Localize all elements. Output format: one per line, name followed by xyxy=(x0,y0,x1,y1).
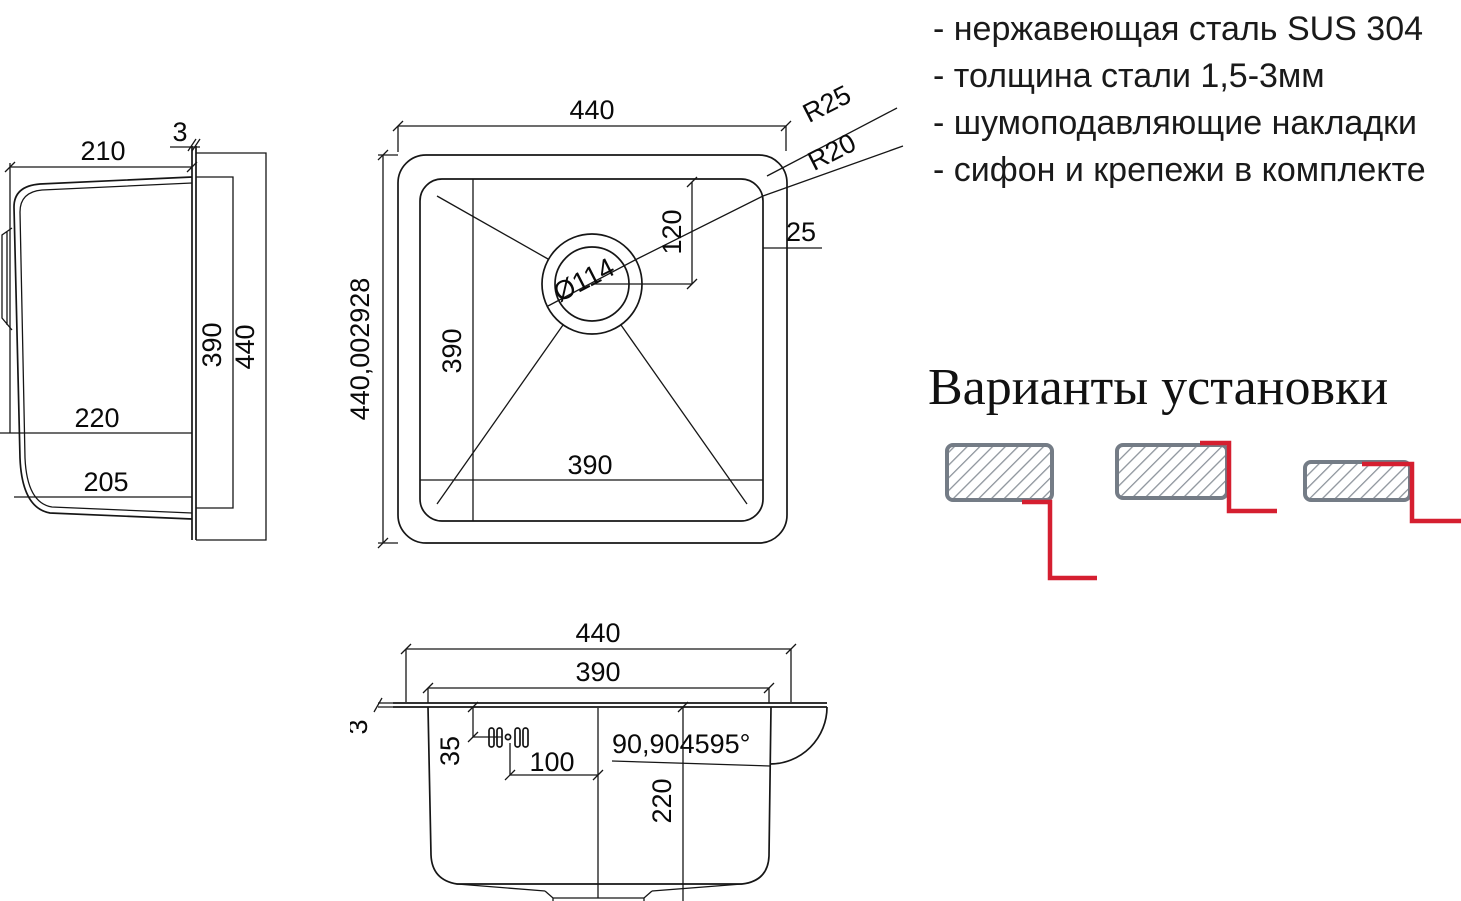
top-dim-r25-label: R25 xyxy=(798,85,856,129)
installation-diagrams xyxy=(920,430,1461,600)
front-dim-3-label: 3 xyxy=(350,719,373,734)
top-view: 440 440,002928 390 390 Ø114 R25 R20 120 … xyxy=(350,85,915,575)
top-dim-25-label: 25 xyxy=(786,217,816,247)
top-dim-440002928-label: 440,002928 xyxy=(350,278,375,421)
countertop-section-1 xyxy=(947,445,1052,500)
installation-diagram-overmount xyxy=(1305,462,1461,521)
front-dim-angle-label: 90,904595° xyxy=(612,729,750,759)
technical-drawing-page: { "features": { "items": [ "- нержавеюща… xyxy=(0,0,1461,901)
top-dim-drain-label: Ø114 xyxy=(549,252,620,308)
side-dim-220-label: 220 xyxy=(74,403,119,433)
side-view: 210 3 390 440 220 205 xyxy=(0,95,300,560)
installation-diagram-flush xyxy=(1117,443,1277,511)
side-dim-3-label: 3 xyxy=(172,117,187,147)
front-corner-arc xyxy=(770,707,827,764)
feature-item: - толщина стали 1,5-3мм xyxy=(933,53,1461,100)
side-bowl-inner-line xyxy=(20,183,192,513)
front-dim-35-label: 35 xyxy=(435,736,465,766)
front-dim-100-label: 100 xyxy=(529,747,574,777)
top-dim-r20-label: R20 xyxy=(803,127,861,176)
overflow-holes xyxy=(489,728,528,747)
installation-diagram-undermount xyxy=(947,445,1097,578)
feature-item: - сифон и крепежи в комплекте xyxy=(933,147,1461,194)
side-dim-440-label: 440 xyxy=(230,324,260,369)
front-view: 440 390 3 35 100 90,904595° 220 xyxy=(350,600,860,901)
sink-rim-profile-1 xyxy=(1022,502,1097,578)
side-dim-390-label: 390 xyxy=(197,322,227,367)
front-dim-390-label: 390 xyxy=(575,657,620,687)
top-dim-390h-label: 390 xyxy=(567,450,612,480)
side-dim-205-label: 205 xyxy=(83,467,128,497)
feature-item: - нержавеющая сталь SUS 304 xyxy=(933,6,1461,53)
installation-title: Варианты установки xyxy=(928,358,1461,417)
countertop-section-2 xyxy=(1117,445,1227,498)
front-dim-440-label: 440 xyxy=(575,618,620,648)
feature-item: - шумоподавляющие накладки xyxy=(933,100,1461,147)
top-dim-120-label: 120 xyxy=(657,209,687,254)
front-dim-220-label: 220 xyxy=(647,778,677,823)
countertop-section-3 xyxy=(1305,462,1410,500)
side-dim-210-label: 210 xyxy=(80,136,125,166)
top-dim-390v-label: 390 xyxy=(437,328,467,373)
features-list: - нержавеющая сталь SUS 304 - толщина ст… xyxy=(933,6,1461,194)
top-dim-440-label: 440 xyxy=(569,95,614,125)
